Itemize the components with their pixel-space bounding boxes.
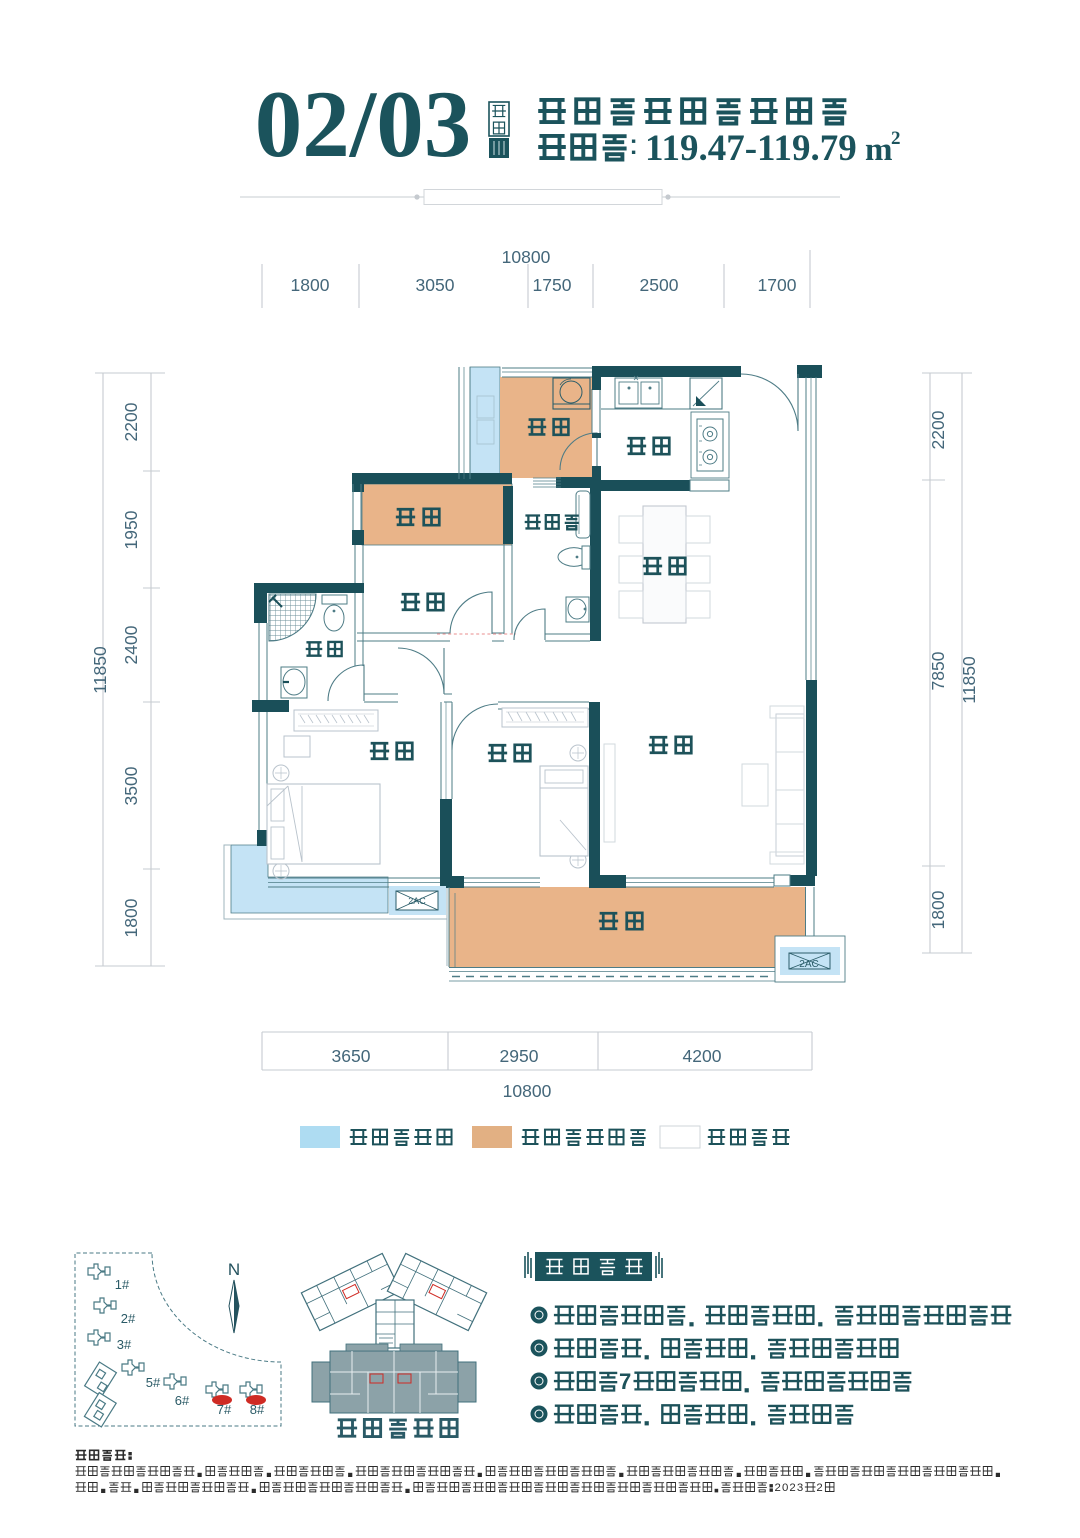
- svg-text:2#: 2#: [121, 1311, 136, 1326]
- svg-text:2950: 2950: [500, 1046, 539, 1066]
- svg-text:3: 3: [797, 1482, 803, 1494]
- svg-text:2500: 2500: [640, 275, 679, 295]
- svg-text:4200: 4200: [683, 1046, 722, 1066]
- svg-text:2200: 2200: [928, 410, 948, 449]
- svg-text:119.47-119.79: 119.47-119.79: [645, 128, 857, 169]
- svg-text:7850: 7850: [928, 651, 948, 690]
- svg-text:11850: 11850: [959, 656, 979, 704]
- svg-text:1750: 1750: [533, 275, 572, 295]
- svg-text:2: 2: [775, 1482, 781, 1494]
- svg-text:3050: 3050: [416, 275, 455, 295]
- svg-text:2400: 2400: [121, 625, 141, 664]
- svg-text:0: 0: [782, 1482, 788, 1494]
- svg-text:m: m: [865, 132, 893, 168]
- svg-text:7: 7: [619, 1369, 631, 1394]
- svg-text:8#: 8#: [250, 1402, 265, 1417]
- svg-text:3#: 3#: [117, 1337, 132, 1352]
- svg-text:3650: 3650: [332, 1046, 371, 1066]
- svg-text:1800: 1800: [121, 898, 141, 937]
- svg-text:02/03: 02/03: [255, 71, 471, 177]
- svg-text:6#: 6#: [175, 1393, 190, 1408]
- svg-text:2AC: 2AC: [408, 896, 426, 906]
- svg-text:2: 2: [891, 128, 901, 149]
- svg-text:N: N: [228, 1260, 240, 1279]
- svg-text:3500: 3500: [121, 766, 141, 805]
- svg-text:1800: 1800: [928, 890, 948, 929]
- svg-text:2200: 2200: [121, 402, 141, 441]
- svg-text:2AC: 2AC: [799, 959, 818, 970]
- svg-text:2: 2: [816, 1482, 822, 1494]
- svg-text:10800: 10800: [502, 247, 551, 267]
- svg-text:10800: 10800: [503, 1081, 552, 1101]
- svg-text:1800: 1800: [291, 275, 330, 295]
- svg-text:1700: 1700: [758, 275, 797, 295]
- svg-text:2: 2: [789, 1482, 795, 1494]
- svg-text:11850: 11850: [90, 646, 110, 694]
- svg-text:7#: 7#: [217, 1402, 232, 1417]
- svg-text:5#: 5#: [146, 1375, 161, 1390]
- svg-text:1950: 1950: [121, 510, 141, 549]
- svg-text:1#: 1#: [115, 1277, 130, 1292]
